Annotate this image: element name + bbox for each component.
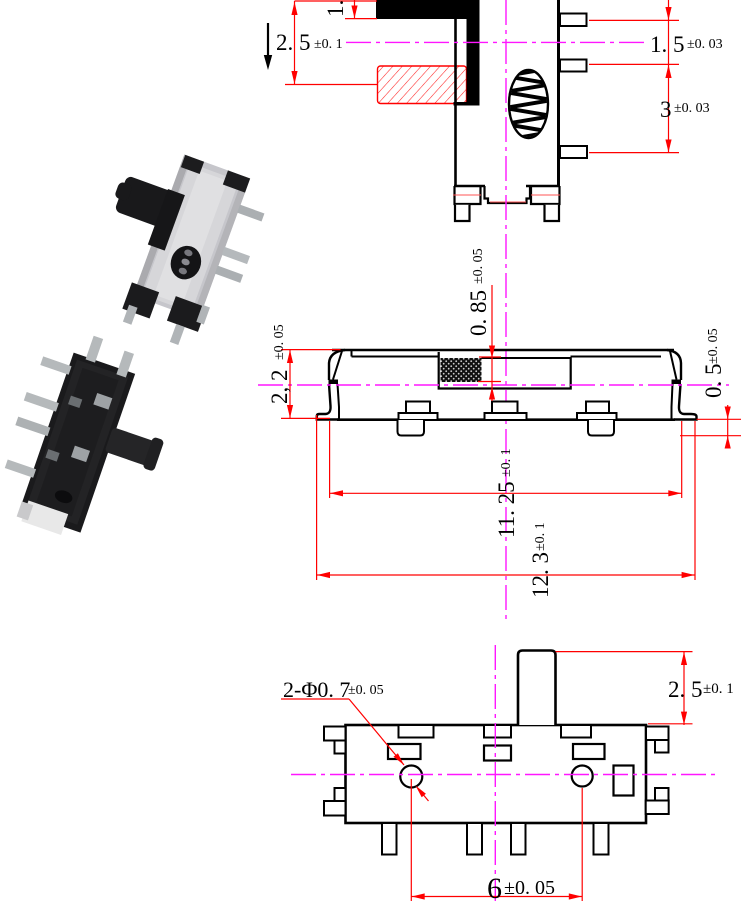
svg-text:±0. 05: ±0. 05 (504, 877, 555, 899)
svg-text:±0. 1: ±0. 1 (499, 448, 514, 477)
svg-text:1.: 1. (323, 0, 348, 17)
svg-text:12. 3: 12. 3 (528, 552, 553, 598)
svg-text:0. 5: 0. 5 (701, 364, 726, 399)
svg-text:2. 5: 2. 5 (668, 677, 703, 702)
svg-text:±0. 05: ±0. 05 (471, 248, 486, 284)
svg-text:±0. 1: ±0. 1 (703, 681, 734, 697)
svg-text:±0. 05: ±0. 05 (272, 324, 287, 360)
svg-text:±0. 03: ±0. 03 (687, 37, 723, 52)
svg-text:6: 6 (487, 872, 502, 905)
svg-text:3: 3 (660, 97, 672, 122)
svg-text:0. 85: 0. 85 (466, 290, 491, 336)
svg-text:±0. 1: ±0. 1 (314, 37, 343, 52)
svg-text:±0. 05: ±0. 05 (706, 328, 721, 364)
svg-text:2. 5: 2. 5 (276, 30, 311, 55)
svg-text:±0. 05: ±0. 05 (348, 683, 384, 698)
svg-text:1. 5: 1. 5 (650, 32, 685, 57)
svg-text:±0. 1: ±0. 1 (533, 522, 548, 551)
svg-text:11. 25: 11. 25 (494, 481, 519, 538)
svg-text:2-Φ0. 7: 2-Φ0. 7 (283, 677, 350, 702)
svg-text:2, 2: 2, 2 (267, 370, 292, 405)
svg-text:±0. 03: ±0. 03 (674, 101, 710, 116)
